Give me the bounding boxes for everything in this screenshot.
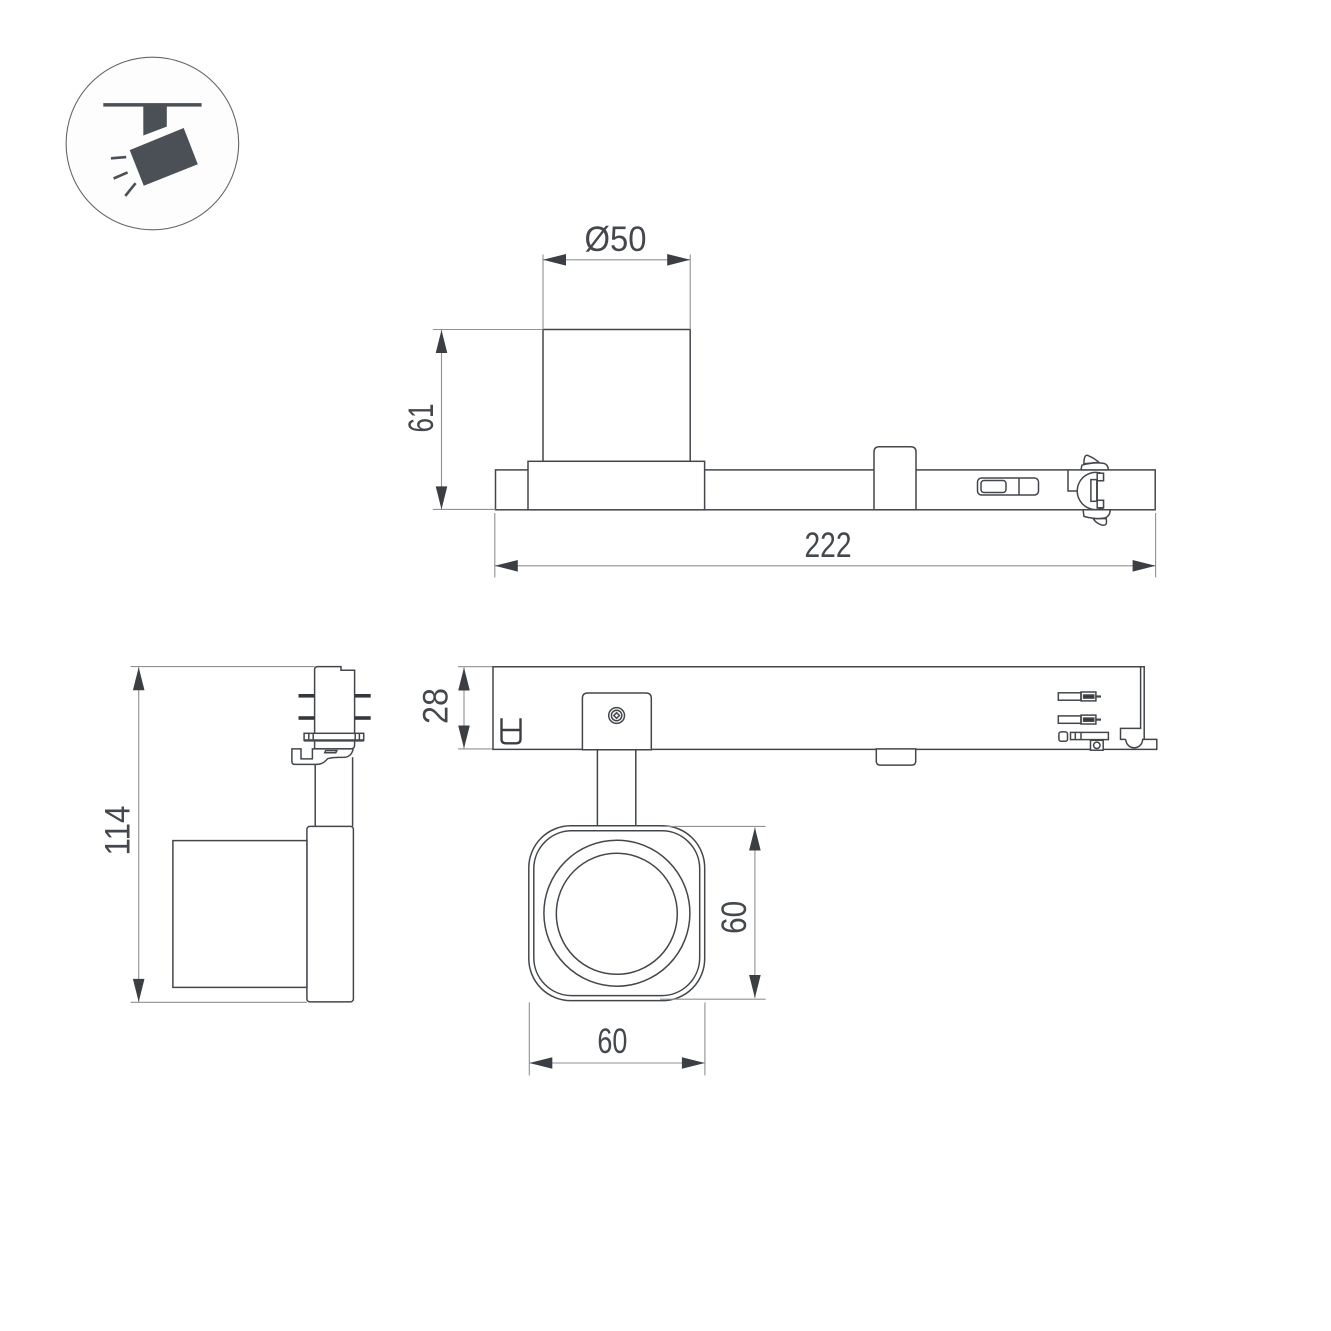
svg-text:60: 60	[715, 901, 754, 934]
svg-text:Ø50: Ø50	[585, 220, 647, 259]
svg-text:28: 28	[417, 688, 456, 724]
svg-text:222: 222	[805, 526, 852, 565]
svg-text:61: 61	[402, 404, 441, 433]
svg-text:114: 114	[99, 806, 138, 856]
svg-text:60: 60	[597, 1022, 627, 1061]
